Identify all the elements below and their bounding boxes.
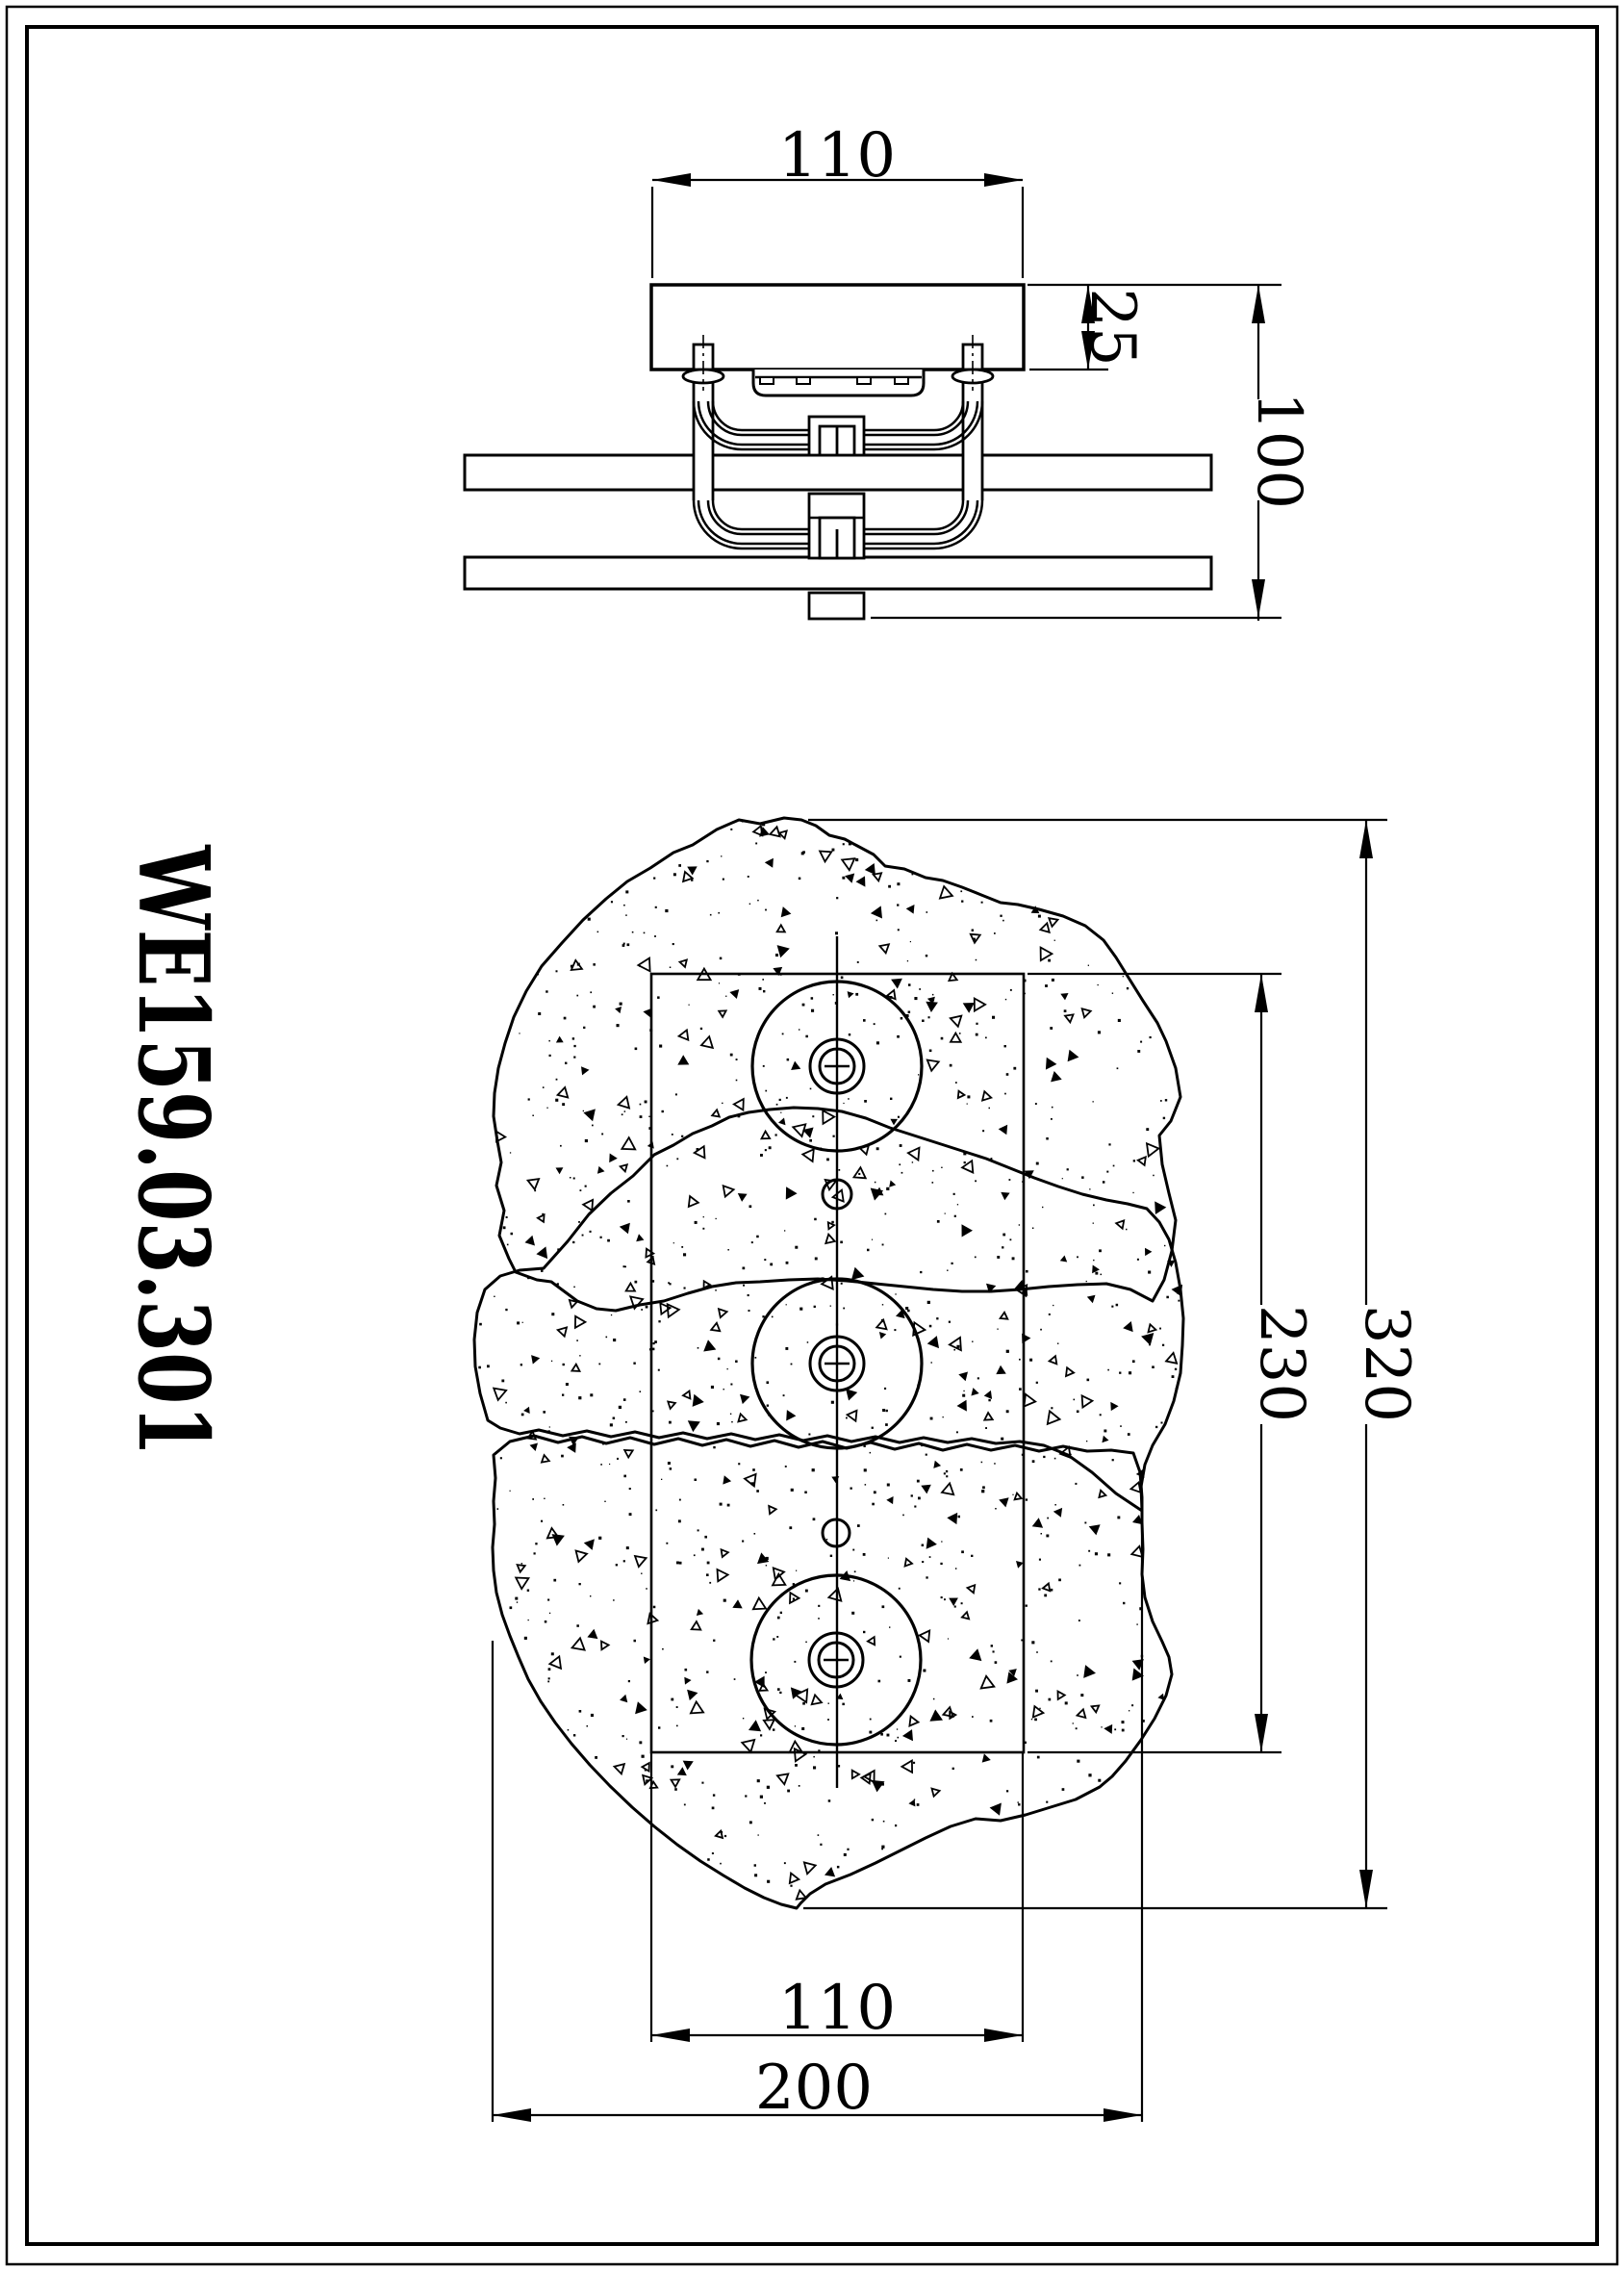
speckle-dot	[561, 1455, 564, 1458]
speckle-dot	[756, 1490, 759, 1493]
speckle-triangle	[1024, 1394, 1035, 1407]
speckle-dot	[926, 955, 927, 957]
speckle-dot	[1051, 1118, 1053, 1120]
speckle-dot	[818, 1834, 820, 1836]
speckle-dot	[887, 1484, 890, 1487]
speckle-triangle	[693, 1394, 704, 1407]
speckle-dot	[1119, 1372, 1121, 1374]
speckle-triangle	[1078, 1709, 1086, 1718]
speckle-dot	[534, 1552, 536, 1554]
speckle-dot	[914, 997, 917, 1000]
speckle-dot	[883, 1821, 885, 1823]
speckle-dot	[754, 1874, 757, 1876]
speckle-dot	[583, 1027, 585, 1029]
speckle-dot	[653, 1606, 656, 1609]
speckle-triangle	[556, 1167, 564, 1174]
speckle-dot	[780, 1612, 782, 1614]
speckle-dot	[507, 1244, 509, 1246]
speckle-dot	[796, 1570, 797, 1571]
speckle-dot	[642, 1755, 645, 1758]
speckle-triangle	[740, 1394, 749, 1404]
speckle-dot	[713, 1794, 715, 1796]
speckle-dot	[510, 1491, 511, 1492]
speckle-dot	[900, 1656, 901, 1658]
speckle-triangle	[1015, 1493, 1022, 1500]
speckle-dot	[972, 930, 974, 931]
speckle-dot	[1108, 1143, 1110, 1145]
speckle-dot	[591, 1714, 594, 1717]
speckle-dot	[850, 1488, 852, 1490]
speckle-dot	[842, 1703, 845, 1706]
speckle-dot	[556, 1079, 558, 1081]
speckle-dot	[981, 1490, 984, 1493]
speckle-triangle	[823, 1110, 834, 1124]
speckle-dot	[610, 1423, 613, 1426]
speckle-triangle	[845, 874, 854, 883]
speckle-dot	[882, 1409, 885, 1412]
speckle-dot	[655, 1510, 657, 1512]
speckle-dot	[1051, 1407, 1053, 1409]
speckle-dot	[662, 1110, 664, 1112]
speckle-triangle	[622, 1137, 635, 1149]
speckle-dot	[818, 1618, 820, 1620]
speckle-triangle	[765, 858, 774, 868]
speckle-dot	[1009, 1179, 1011, 1181]
speckle-triangle	[929, 1709, 943, 1721]
speckle-dot	[600, 1237, 602, 1238]
speckle-dot	[721, 855, 722, 856]
speckle-dot	[1002, 1246, 1003, 1248]
speckle-dot	[626, 1546, 629, 1549]
speckle-dot	[1149, 1343, 1151, 1345]
speckle-dot	[1049, 1698, 1052, 1701]
speckle-triangle	[695, 1146, 705, 1158]
speckle-dot	[1067, 1168, 1069, 1170]
speckle-dot	[940, 1563, 942, 1565]
speckle-dot	[895, 1293, 896, 1294]
speckle-dot	[684, 1288, 686, 1289]
speckle-dot	[901, 1017, 903, 1020]
speckle-dot	[976, 1033, 978, 1036]
speckle-dot	[795, 1246, 798, 1249]
speckle-dot	[1086, 1281, 1087, 1282]
speckle-dot	[941, 1167, 942, 1168]
speckle-dot	[671, 1765, 673, 1768]
speckle-dot	[787, 1790, 790, 1793]
speckle-dot	[833, 1135, 835, 1137]
speckle-dot	[943, 1416, 944, 1417]
speckle-dot	[1079, 1565, 1081, 1567]
speckle-dot	[1010, 1238, 1012, 1240]
speckle-dot	[644, 932, 646, 934]
speckle-dot	[597, 931, 599, 933]
speckle-dot	[876, 1147, 879, 1150]
speckle-triangle	[949, 1598, 958, 1607]
speckle-triangle	[647, 1614, 657, 1623]
speckle-triangle	[828, 1589, 841, 1601]
speckle-dot	[765, 1671, 767, 1673]
speckle-dot	[1006, 1350, 1009, 1353]
speckle-dot	[1052, 979, 1054, 982]
speckle-dot	[580, 1189, 582, 1191]
speckle-dot	[562, 1394, 564, 1396]
speckle-triangle	[1087, 1295, 1096, 1304]
speckle-dot	[1089, 1188, 1090, 1189]
speckle-dot	[948, 1638, 949, 1639]
speckle-dot	[907, 960, 908, 961]
speckle-dot	[928, 1016, 930, 1018]
speckle-dot	[553, 1579, 556, 1582]
speckle-dot	[813, 1518, 816, 1520]
speckle-dot	[758, 1834, 759, 1835]
speckle-triangle	[943, 1707, 952, 1717]
speckle-dot	[1049, 1314, 1051, 1315]
speckle-dot	[494, 1296, 495, 1297]
speckle-dot	[1101, 1726, 1102, 1727]
speckle-dot	[959, 1033, 961, 1034]
speckle-triangle	[1149, 1324, 1156, 1332]
speckle-dot	[749, 1205, 752, 1208]
speckle-dot	[786, 1097, 788, 1099]
speckle-dot	[1002, 920, 1004, 922]
speckle-dot	[1050, 1027, 1053, 1030]
speckle-triangle	[1131, 1546, 1142, 1557]
speckle-dot	[929, 1556, 931, 1558]
speckle-dot	[799, 878, 801, 880]
speckle-triangle	[528, 1179, 540, 1189]
speckle-dot	[576, 1624, 579, 1627]
speckle-dot	[954, 1215, 956, 1217]
speckle-dot	[669, 1283, 671, 1285]
technical-drawing-canvas: WE159.03.301	[0, 0, 1624, 2271]
speckle-dot	[1010, 989, 1012, 991]
speckle-dot	[769, 1146, 772, 1149]
speckle-dot	[917, 1480, 920, 1483]
speckle-triangle	[969, 1648, 981, 1661]
speckle-dot	[707, 1858, 710, 1861]
speckle-triangle	[1147, 1143, 1158, 1156]
speckle-dot	[907, 1310, 910, 1313]
speckle-dot	[881, 1846, 884, 1849]
speckle-dot	[549, 1426, 550, 1427]
speckle-dot	[809, 1139, 812, 1142]
speckle-dot	[703, 1216, 704, 1217]
speckle-dot	[775, 954, 778, 957]
speckle-dot	[1052, 1107, 1053, 1109]
speckle-dot	[503, 1226, 506, 1229]
speckle-dot	[811, 997, 814, 1000]
speckle-dot	[1005, 999, 1006, 1000]
speckle-triangle	[999, 1497, 1008, 1507]
speckle-triangle	[820, 852, 831, 862]
speckle-dot	[791, 1364, 793, 1365]
speckle-dot	[828, 1799, 831, 1802]
speckle-dot	[616, 1564, 618, 1566]
speckle-dot	[843, 1103, 844, 1104]
speckle-dot	[1006, 1410, 1009, 1413]
speckle-dot	[841, 1283, 843, 1285]
speckle-dot	[772, 1316, 774, 1318]
speckle-triangle	[734, 1099, 744, 1110]
speckle-triangle	[1145, 1248, 1152, 1256]
speckle-dot	[754, 1864, 756, 1866]
speckle-dot	[1044, 1444, 1045, 1445]
speckle-triangle	[851, 1267, 864, 1280]
speckle-dot	[967, 1095, 970, 1098]
speckle-dot	[872, 1819, 874, 1821]
speckle-dot	[1013, 1067, 1016, 1070]
speckle-dot	[864, 1468, 867, 1471]
speckle-dot	[720, 1863, 722, 1865]
speckle-dot	[566, 1383, 569, 1386]
speckle-dot	[985, 1037, 987, 1039]
speckle-triangle	[861, 1773, 870, 1783]
speckle-dot	[676, 1158, 678, 1160]
speckle-dot	[890, 1098, 892, 1100]
speckle-dot	[765, 1090, 767, 1092]
speckle-dot	[527, 1277, 530, 1280]
speckle-triangle	[587, 1629, 597, 1639]
speckle-dot	[679, 1499, 681, 1501]
dimension-arrowhead	[1255, 1714, 1268, 1752]
speckle-triangle	[927, 1060, 939, 1071]
speckle-dot	[799, 1785, 800, 1787]
speckle-dot	[972, 1716, 974, 1718]
speckle-dot	[855, 858, 858, 861]
speckle-dot	[815, 1258, 818, 1261]
speckle-dot	[1161, 1422, 1163, 1424]
speckle-triangle	[1123, 1321, 1133, 1332]
speckle-dot	[639, 965, 641, 967]
speckle-dot	[1078, 1620, 1080, 1621]
speckle-dot	[991, 1158, 993, 1160]
speckle-dot	[1041, 1533, 1043, 1535]
speckle-dot	[967, 1104, 968, 1105]
speckle-triangle	[1141, 1333, 1154, 1345]
speckle-dot	[549, 1613, 550, 1614]
speckle-dot	[1098, 984, 1099, 985]
speckle-dot	[1126, 1229, 1128, 1231]
speckle-triangle	[777, 945, 790, 957]
speckle-dot	[634, 1640, 637, 1643]
speckle-triangle	[786, 1410, 796, 1420]
speckle-dot	[576, 995, 578, 997]
speckle-dot	[1101, 1274, 1103, 1276]
speckle-dot	[587, 1725, 589, 1727]
speckle-dot	[673, 873, 676, 876]
speckle-dot	[695, 1479, 698, 1482]
speckle-triangle	[742, 1740, 754, 1752]
speckle-dot	[583, 1110, 584, 1111]
speckle-triangle	[609, 1154, 618, 1163]
speckle-dot	[662, 1648, 664, 1650]
speckle-dot	[725, 996, 726, 997]
speckle-dot	[805, 1590, 808, 1593]
speckle-dot	[763, 1065, 765, 1067]
speckle-dot	[625, 1421, 627, 1423]
speckle-dot	[613, 1417, 616, 1420]
speckle-dot	[952, 1768, 954, 1770]
speckle-triangle	[764, 1720, 774, 1729]
speckle-dot	[538, 1012, 541, 1015]
speckle-triangle	[703, 1340, 716, 1351]
speckle-dot	[738, 1115, 741, 1118]
speckle-dot	[551, 1361, 552, 1362]
speckle-triangle	[871, 906, 882, 918]
speckle-dot	[1048, 959, 1051, 962]
speckle-dot	[1127, 987, 1129, 989]
speckle-dot	[779, 1099, 781, 1101]
speckle-triangle	[1083, 1665, 1096, 1678]
speckle-triangle	[635, 1556, 647, 1567]
speckle-dot	[670, 1467, 672, 1470]
speckle-dot	[1053, 1305, 1053, 1306]
speckle-dot	[520, 1364, 522, 1365]
speckle-dot	[600, 1464, 602, 1466]
speckle-triangle	[1053, 1508, 1062, 1518]
speckle-dot	[932, 994, 934, 996]
speckle-dot	[936, 1317, 938, 1319]
speckle-triangle	[571, 1365, 579, 1371]
speckle-dot	[764, 1259, 766, 1261]
speckle-dot	[773, 1638, 774, 1640]
speckle-dot	[1058, 1579, 1061, 1582]
speckle-dot	[749, 904, 750, 905]
speckle-dot	[826, 1159, 829, 1161]
speckle-dot	[712, 1807, 715, 1810]
speckle-dot	[995, 1661, 998, 1664]
speckle-triangle	[1060, 993, 1068, 1000]
speckle-dot	[730, 1054, 733, 1057]
dim-canopy-width: 110	[778, 120, 896, 191]
speckle-triangle	[531, 1355, 540, 1365]
speckle-dot	[895, 1740, 897, 1742]
speckle-dot	[684, 1804, 686, 1806]
speckle-dot	[863, 1553, 866, 1556]
speckle-triangle	[804, 1862, 816, 1874]
speckle-triangle	[732, 1599, 742, 1608]
speckle-dot	[573, 1057, 575, 1059]
speckle-dot	[712, 1852, 714, 1854]
speckle-dot	[645, 1769, 647, 1771]
speckle-dot	[830, 1555, 832, 1557]
speckle-triangle	[719, 1010, 725, 1017]
dimension-arrowhead	[1104, 2108, 1142, 2122]
speckle-dot	[900, 1144, 902, 1147]
speckle-dot	[946, 1475, 948, 1477]
speckle-dot	[1099, 1249, 1102, 1252]
speckle-dot	[1004, 1093, 1006, 1095]
speckle-dot	[542, 1213, 544, 1215]
speckle-triangle	[1131, 1483, 1141, 1493]
speckle-dot	[913, 1762, 915, 1764]
speckle-triangle	[494, 1389, 506, 1400]
dim-overall-width: 200	[755, 2053, 873, 2124]
speckle-dot	[1164, 1245, 1165, 1246]
speckle-dot	[588, 918, 591, 921]
speckle-dot	[790, 1885, 792, 1887]
speckle-dot	[855, 993, 858, 996]
speckle-dot	[595, 1756, 597, 1759]
speckle-dot	[478, 1366, 481, 1369]
speckle-dot	[658, 1320, 660, 1322]
speckle-dot	[922, 1020, 925, 1023]
speckle-triangle	[697, 1609, 703, 1616]
speckle-triangle	[781, 906, 792, 917]
speckle-dot	[958, 1516, 961, 1518]
speckle-dot	[635, 1048, 638, 1051]
speckle-triangle	[583, 1109, 596, 1121]
speckle-triangle	[1016, 1561, 1024, 1569]
speckle-dot	[730, 1414, 731, 1415]
speckle-dot	[876, 1041, 879, 1044]
speckle-dot	[619, 1406, 622, 1409]
speckle-dot	[1046, 1137, 1049, 1140]
speckle-triangle	[951, 1016, 962, 1027]
speckle-dot	[683, 1253, 686, 1256]
plan-view: 230 320 110 200	[474, 818, 1422, 2124]
speckle-dot	[1019, 1224, 1020, 1225]
speckle-dot	[528, 1098, 530, 1100]
speckle-dot	[625, 890, 628, 893]
speckle-dot	[881, 1319, 884, 1322]
speckle-dot	[731, 1421, 733, 1423]
speckle-dot	[645, 1101, 647, 1104]
speckle-dot	[635, 1281, 638, 1284]
dimension-arrowhead	[493, 2108, 531, 2122]
speckle-dot	[897, 904, 899, 906]
speckle-dot	[573, 1734, 575, 1736]
speckle-dot	[870, 1719, 872, 1721]
speckle-dot	[882, 1304, 883, 1305]
speckle-dot	[898, 1116, 900, 1118]
speckle-triangle	[542, 1455, 549, 1463]
speckle-dot	[882, 1605, 885, 1608]
speckle-dot	[908, 1011, 911, 1014]
speckle-triangle	[865, 863, 875, 875]
speckle-triangle	[624, 1450, 633, 1458]
speckle-dot	[767, 1786, 770, 1789]
speckle-dot	[994, 932, 996, 934]
speckle-dot	[755, 1357, 757, 1359]
speckle-dot	[582, 1235, 584, 1237]
speckle-dot	[613, 1599, 615, 1601]
speckle-dot	[874, 1023, 875, 1025]
speckle-dot	[579, 1355, 580, 1356]
speckle-dot	[1131, 1704, 1133, 1706]
speckle-dot	[1080, 1694, 1083, 1697]
speckle-dot	[510, 1152, 511, 1153]
speckle-dot	[654, 1340, 657, 1343]
speckle-dot	[604, 1501, 605, 1502]
speckle-dot	[577, 963, 580, 966]
speckle-triangle	[852, 1771, 859, 1778]
speckle-dot	[871, 870, 873, 872]
speckle-dot	[592, 1125, 594, 1127]
speckle-dot	[905, 1307, 908, 1310]
speckle-dot	[698, 1347, 699, 1349]
speckle-dot	[678, 864, 681, 867]
speckle-triangle	[1041, 948, 1053, 960]
speckle-dot	[1032, 1228, 1034, 1230]
speckle-dot	[976, 959, 977, 961]
speckle-dot	[770, 1263, 773, 1266]
speckle-dot	[826, 1539, 827, 1540]
speckle-dot	[908, 983, 911, 986]
speckle-dot	[814, 1306, 816, 1308]
speckle-dot	[1152, 1365, 1155, 1368]
speckle-triangle	[516, 1578, 528, 1590]
